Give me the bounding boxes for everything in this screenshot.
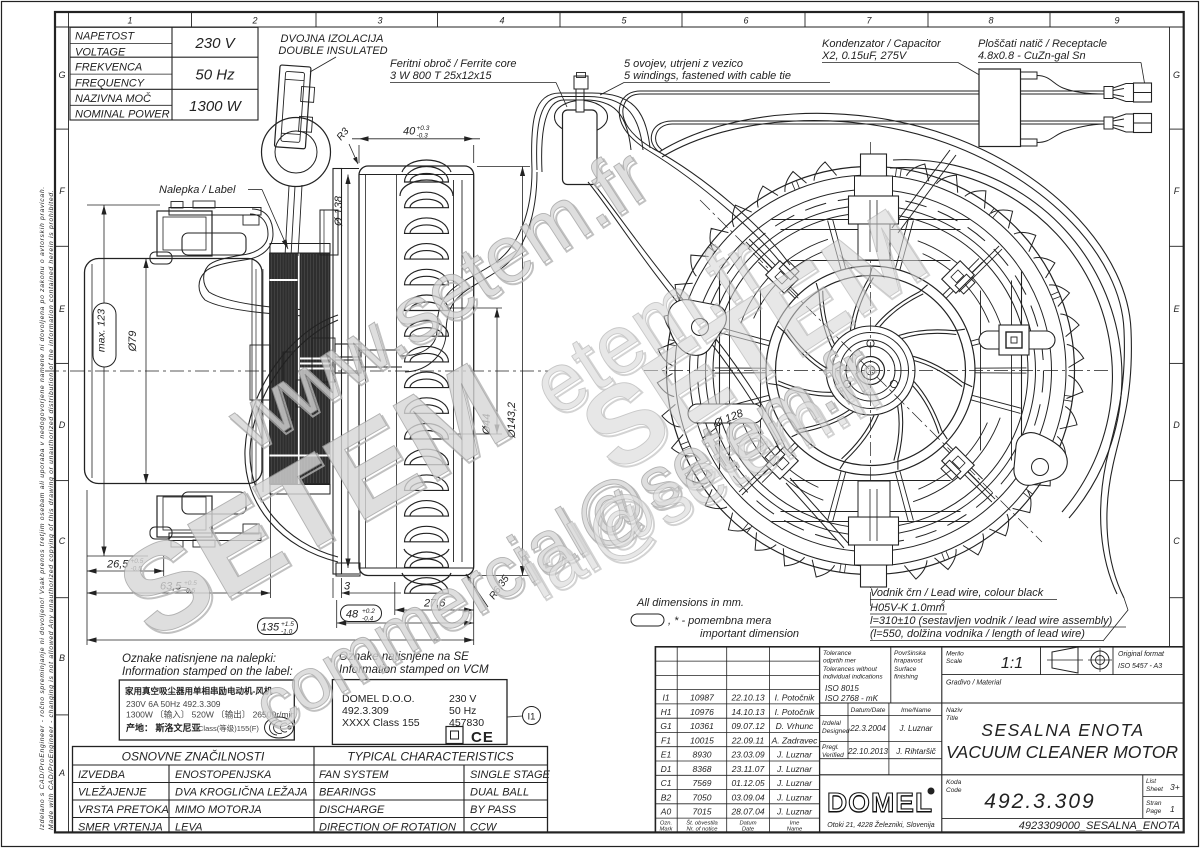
svg-text:1: 1	[1170, 804, 1175, 814]
svg-text:X2, 0.15uF, 275V: X2, 0.15uF, 275V	[821, 50, 908, 62]
svg-text:14.10.13: 14.10.13	[731, 707, 764, 717]
svg-text:DIRECTION OF ROTATION: DIRECTION OF ROTATION	[319, 822, 456, 834]
svg-text:Nalepka / Label: Nalepka / Label	[159, 184, 236, 196]
svg-text:23.03.09: 23.03.09	[730, 750, 764, 760]
svg-text:Tolerance: Tolerance	[823, 650, 852, 657]
svg-text:DOUBLE INSULATED: DOUBLE INSULATED	[278, 45, 387, 57]
svg-text:E1: E1	[661, 750, 672, 760]
svg-text:I. Potočnik: I. Potočnik	[775, 693, 815, 703]
svg-text:22.09.11: 22.09.11	[731, 735, 765, 745]
svg-text:产地： 斯洛文尼亚: 产地： 斯洛文尼亚	[126, 722, 201, 733]
svg-text:Ø79: Ø79	[127, 331, 139, 353]
svg-text:List: List	[1146, 778, 1157, 785]
svg-text:40: 40	[403, 126, 416, 138]
svg-text:Class(等级)155(F): Class(等级)155(F)	[198, 723, 259, 733]
svg-text:Kondenzator / Capacitor: Kondenzator / Capacitor	[822, 38, 942, 50]
svg-text:I. Potočnik: I. Potočnik	[775, 707, 815, 717]
svg-text:6: 6	[743, 16, 748, 26]
svg-text:5 ovojev, utrjeni z vezico: 5 ovojev, utrjeni z vezico	[624, 58, 743, 70]
svg-text:DOMEL: DOMEL	[827, 787, 933, 818]
svg-text:odprtih mer: odprtih mer	[823, 658, 857, 665]
svg-text:finishing: finishing	[894, 674, 918, 681]
svg-text:Code: Code	[946, 787, 962, 794]
svg-text:5 windings, fastened with cabl: 5 windings, fastened with cable tie	[624, 70, 791, 82]
svg-text:SINGLE STAGE: SINGLE STAGE	[470, 769, 551, 781]
svg-text:Ø 138: Ø 138	[333, 195, 345, 227]
svg-text:Št. obvestila: Št. obvestila	[686, 820, 718, 827]
svg-text:B: B	[59, 653, 65, 663]
svg-text:D: D	[59, 420, 66, 430]
svg-text:FAN SYSTEM: FAN SYSTEM	[319, 769, 389, 781]
svg-text:Oznake natisnjene na nalepki:: Oznake natisnjene na nalepki:	[122, 653, 276, 665]
svg-text:10015: 10015	[690, 735, 714, 745]
svg-text:492.3.309: 492.3.309	[984, 790, 1095, 813]
svg-text:DVOJNA IZOLACIJA: DVOJNA IZOLACIJA	[281, 33, 384, 45]
svg-text:VLEŽAJENJE: VLEŽAJENJE	[78, 786, 147, 799]
svg-text:Scale: Scale	[946, 658, 963, 665]
svg-text:-0.3: -0.3	[417, 133, 429, 140]
svg-text:Title: Title	[946, 715, 959, 722]
svg-text:B2: B2	[661, 792, 672, 802]
svg-text:+1.5: +1.5	[281, 621, 294, 628]
svg-text:Date: Date	[742, 827, 755, 833]
svg-text:8368: 8368	[693, 764, 712, 774]
svg-text:J. Rihtaršič: J. Rihtaršič	[895, 747, 936, 756]
svg-text:Mark: Mark	[660, 827, 674, 833]
svg-text:XXXX Class 155: XXXX Class 155	[342, 717, 420, 729]
svg-text:Gradivo / Material: Gradivo / Material	[946, 680, 1002, 687]
svg-text:+0.3: +0.3	[417, 125, 430, 132]
svg-text:10976: 10976	[690, 707, 714, 717]
svg-text:Original format: Original format	[1118, 651, 1165, 658]
svg-text:4.8x0.8 - CuZn-gal Sn: 4.8x0.8 - CuZn-gal Sn	[978, 50, 1086, 62]
svg-text:VOLTAGE: VOLTAGE	[75, 47, 126, 59]
svg-text:4: 4	[499, 16, 504, 26]
svg-text:J. Luznar: J. Luznar	[776, 750, 813, 760]
svg-text:7050: 7050	[693, 792, 712, 802]
svg-text:ISO 5457 - A3: ISO 5457 - A3	[1118, 663, 1162, 670]
svg-text:LEVA: LEVA	[175, 822, 203, 834]
svg-text:FREQUENCY: FREQUENCY	[75, 78, 145, 90]
svg-text:3+: 3+	[1170, 782, 1180, 792]
svg-text:A. Zadravec: A. Zadravec	[771, 735, 819, 745]
svg-text:50 Hz: 50 Hz	[449, 705, 476, 717]
svg-text:8: 8	[988, 16, 993, 26]
svg-text:28.07.04: 28.07.04	[730, 807, 764, 817]
svg-text:, * - pomembna mera: , * - pomembna mera	[668, 615, 771, 627]
svg-text:D1: D1	[661, 764, 672, 774]
svg-text:135: 135	[261, 622, 280, 634]
svg-text:H05V-K 1.0mm: H05V-K 1.0mm	[870, 602, 945, 614]
svg-text:Surface: Surface	[894, 666, 917, 673]
svg-text:F1: F1	[661, 735, 671, 745]
svg-text:max. 123: max. 123	[96, 309, 108, 352]
svg-text:Otoki 21, 4228 Železniki, Slov: Otoki 21, 4228 Železniki, Slovenija	[827, 820, 934, 829]
svg-text:DUAL BALL: DUAL BALL	[470, 787, 529, 799]
svg-text:C: C	[1173, 536, 1180, 546]
svg-text:7015: 7015	[693, 807, 712, 817]
svg-text:ISO 2768 - mK: ISO 2768 - mK	[825, 694, 879, 703]
svg-text:G: G	[58, 70, 65, 80]
svg-text:A0: A0	[660, 807, 672, 817]
svg-text:1: 1	[127, 16, 132, 26]
svg-text:SESALNA ENOTA: SESALNA ENOTA	[981, 720, 1144, 740]
svg-text:FREKVENCA: FREKVENCA	[75, 62, 142, 74]
svg-text:hrapavost: hrapavost	[894, 658, 924, 665]
svg-text:G1: G1	[660, 721, 672, 731]
svg-text:Izdelal: Izdelal	[822, 720, 841, 727]
svg-text:Naziv: Naziv	[946, 707, 963, 714]
svg-text:A: A	[58, 768, 65, 778]
svg-text:Ime/Name: Ime/Name	[901, 707, 931, 714]
svg-text:individual indications: individual indications	[823, 674, 883, 681]
svg-text:DVA KROGLIČNA LEŽAJA: DVA KROGLIČNA LEŽAJA	[175, 786, 307, 799]
svg-text:J. Luznar: J. Luznar	[899, 724, 933, 733]
svg-text:3: 3	[377, 16, 382, 26]
svg-text:E: E	[59, 304, 66, 314]
svg-text:230 V: 230 V	[194, 35, 236, 52]
svg-text:important dimension: important dimension	[700, 628, 799, 640]
svg-text:F: F	[1174, 186, 1180, 196]
svg-text:Made with CAD/ProEngineer - ch: Made with CAD/ProEngineer - changing is …	[48, 190, 55, 830]
svg-text:3: 3	[344, 581, 351, 593]
svg-text:I1: I1	[662, 693, 669, 703]
svg-text:9: 9	[1114, 16, 1119, 26]
svg-text:D: D	[1173, 420, 1180, 430]
svg-text:Nr. of notice: Nr. of notice	[686, 827, 718, 833]
svg-text:2: 2	[251, 16, 257, 26]
svg-text:TYPICAL CHARACTERISTICS: TYPICAL CHARACTERISTICS	[347, 750, 513, 764]
svg-text:Pregl.: Pregl.	[822, 744, 839, 751]
svg-text:Sheet: Sheet	[1146, 786, 1164, 793]
svg-text:BY PASS: BY PASS	[470, 804, 517, 816]
svg-text:Koda: Koda	[946, 779, 962, 786]
svg-text:22.3.2004: 22.3.2004	[849, 724, 886, 733]
svg-text:G: G	[1173, 70, 1180, 80]
svg-text:-1.0: -1.0	[281, 629, 293, 636]
svg-text:22.10.13: 22.10.13	[730, 693, 764, 703]
svg-text:C: C	[59, 536, 66, 546]
svg-text:Feritni obroč / Ferrite core: Feritni obroč / Ferrite core	[390, 58, 517, 70]
svg-text:OSNOVNE ZNAČILNOSTI: OSNOVNE ZNAČILNOSTI	[122, 749, 265, 764]
svg-text:J. Luznar: J. Luznar	[776, 807, 813, 817]
svg-text:(l=550, dolžina vodnika / leng: (l=550, dolžina vodnika / length of lead…	[870, 628, 1085, 640]
svg-text:Verified: Verified	[822, 752, 844, 759]
svg-text:3 W 800 T 25x12x15: 3 W 800 T 25x12x15	[390, 70, 492, 82]
svg-text:Designed: Designed	[822, 728, 850, 735]
svg-text:NOMINAL POWER: NOMINAL POWER	[75, 109, 170, 121]
svg-text:10361: 10361	[690, 721, 714, 731]
svg-text:Izdelano s CAD/ProEngineer - r: Izdelano s CAD/ProEngineer - ročno sprem…	[39, 186, 46, 830]
svg-text:IZVEDBA: IZVEDBA	[78, 769, 125, 781]
svg-text:230 V: 230 V	[449, 693, 476, 705]
svg-text:Tolerances without: Tolerances without	[823, 666, 878, 673]
svg-text:CCW: CCW	[470, 822, 498, 834]
svg-text:03.09.04: 03.09.04	[731, 792, 764, 802]
svg-text:8930: 8930	[693, 750, 712, 760]
svg-text:1:1: 1:1	[1001, 655, 1023, 672]
svg-text:E: E	[1173, 304, 1180, 314]
svg-text:CE: CE	[471, 729, 494, 746]
svg-text:l=310±10 (sestavljen vodnik /: l=310±10 (sestavljen vodnik / lead wire …	[870, 615, 1113, 627]
svg-text:7569: 7569	[693, 778, 712, 788]
svg-text:All dimensions in mm.: All dimensions in mm.	[636, 597, 744, 609]
svg-text:H1: H1	[661, 707, 672, 717]
svg-text:C1: C1	[661, 778, 672, 788]
svg-text:457830: 457830	[449, 717, 484, 729]
svg-text:01.12.05: 01.12.05	[731, 778, 764, 788]
svg-text:J. Luznar: J. Luznar	[776, 764, 813, 774]
svg-text:BEARINGS: BEARINGS	[319, 787, 377, 799]
svg-text:ISO 8015: ISO 8015	[825, 684, 859, 693]
svg-text:Merilo: Merilo	[946, 651, 964, 658]
svg-text:J. Luznar: J. Luznar	[776, 792, 813, 802]
svg-text:VRSTA PRETOKA: VRSTA PRETOKA	[78, 804, 169, 816]
svg-text:50 Hz: 50 Hz	[195, 67, 235, 84]
svg-text:Page: Page	[1146, 808, 1162, 815]
svg-text:NAPETOST: NAPETOST	[75, 31, 135, 43]
svg-text:230V 6A 50Hz 492.3.309: 230V 6A 50Hz 492.3.309	[126, 699, 221, 709]
svg-text:SMER VRTENJA: SMER VRTENJA	[78, 822, 163, 834]
svg-text:D. Vrhunc: D. Vrhunc	[776, 721, 814, 731]
svg-text:VACUUM CLEANER MOTOR: VACUUM CLEANER MOTOR	[946, 742, 1178, 762]
svg-text:F: F	[59, 186, 65, 196]
svg-text:23.11.07: 23.11.07	[731, 764, 765, 774]
svg-text:MIMO MOTORJA: MIMO MOTORJA	[175, 804, 262, 816]
svg-text:2: 2	[940, 600, 945, 607]
svg-text:Stran: Stran	[1146, 800, 1162, 807]
svg-text:NAZIVNA MOČ: NAZIVNA MOČ	[75, 92, 151, 105]
svg-text:Name: Name	[787, 827, 803, 833]
svg-text:Datum/Date: Datum/Date	[851, 707, 886, 714]
svg-text:22.10.2013: 22.10.2013	[847, 747, 889, 756]
svg-text:4923309000_SESALNA_ENOTA: 4923309000_SESALNA_ENOTA	[1019, 820, 1180, 832]
svg-text:1300 W: 1300 W	[189, 98, 243, 115]
svg-text:I1: I1	[528, 712, 536, 723]
svg-text:DISCHARGE: DISCHARGE	[319, 804, 385, 816]
svg-text:Vodnik črn / Lead wire, colour: Vodnik črn / Lead wire, colour black	[870, 587, 1044, 599]
svg-text:J. Luznar: J. Luznar	[776, 778, 813, 788]
svg-text:Ploščati natič / Receptacle: Ploščati natič / Receptacle	[978, 38, 1107, 50]
svg-text:ENOSTOPENJSKA: ENOSTOPENJSKA	[175, 769, 271, 781]
svg-text:09.07.12: 09.07.12	[731, 721, 764, 731]
svg-text:10987: 10987	[690, 693, 714, 703]
svg-text:Površinska: Površinska	[894, 650, 926, 657]
